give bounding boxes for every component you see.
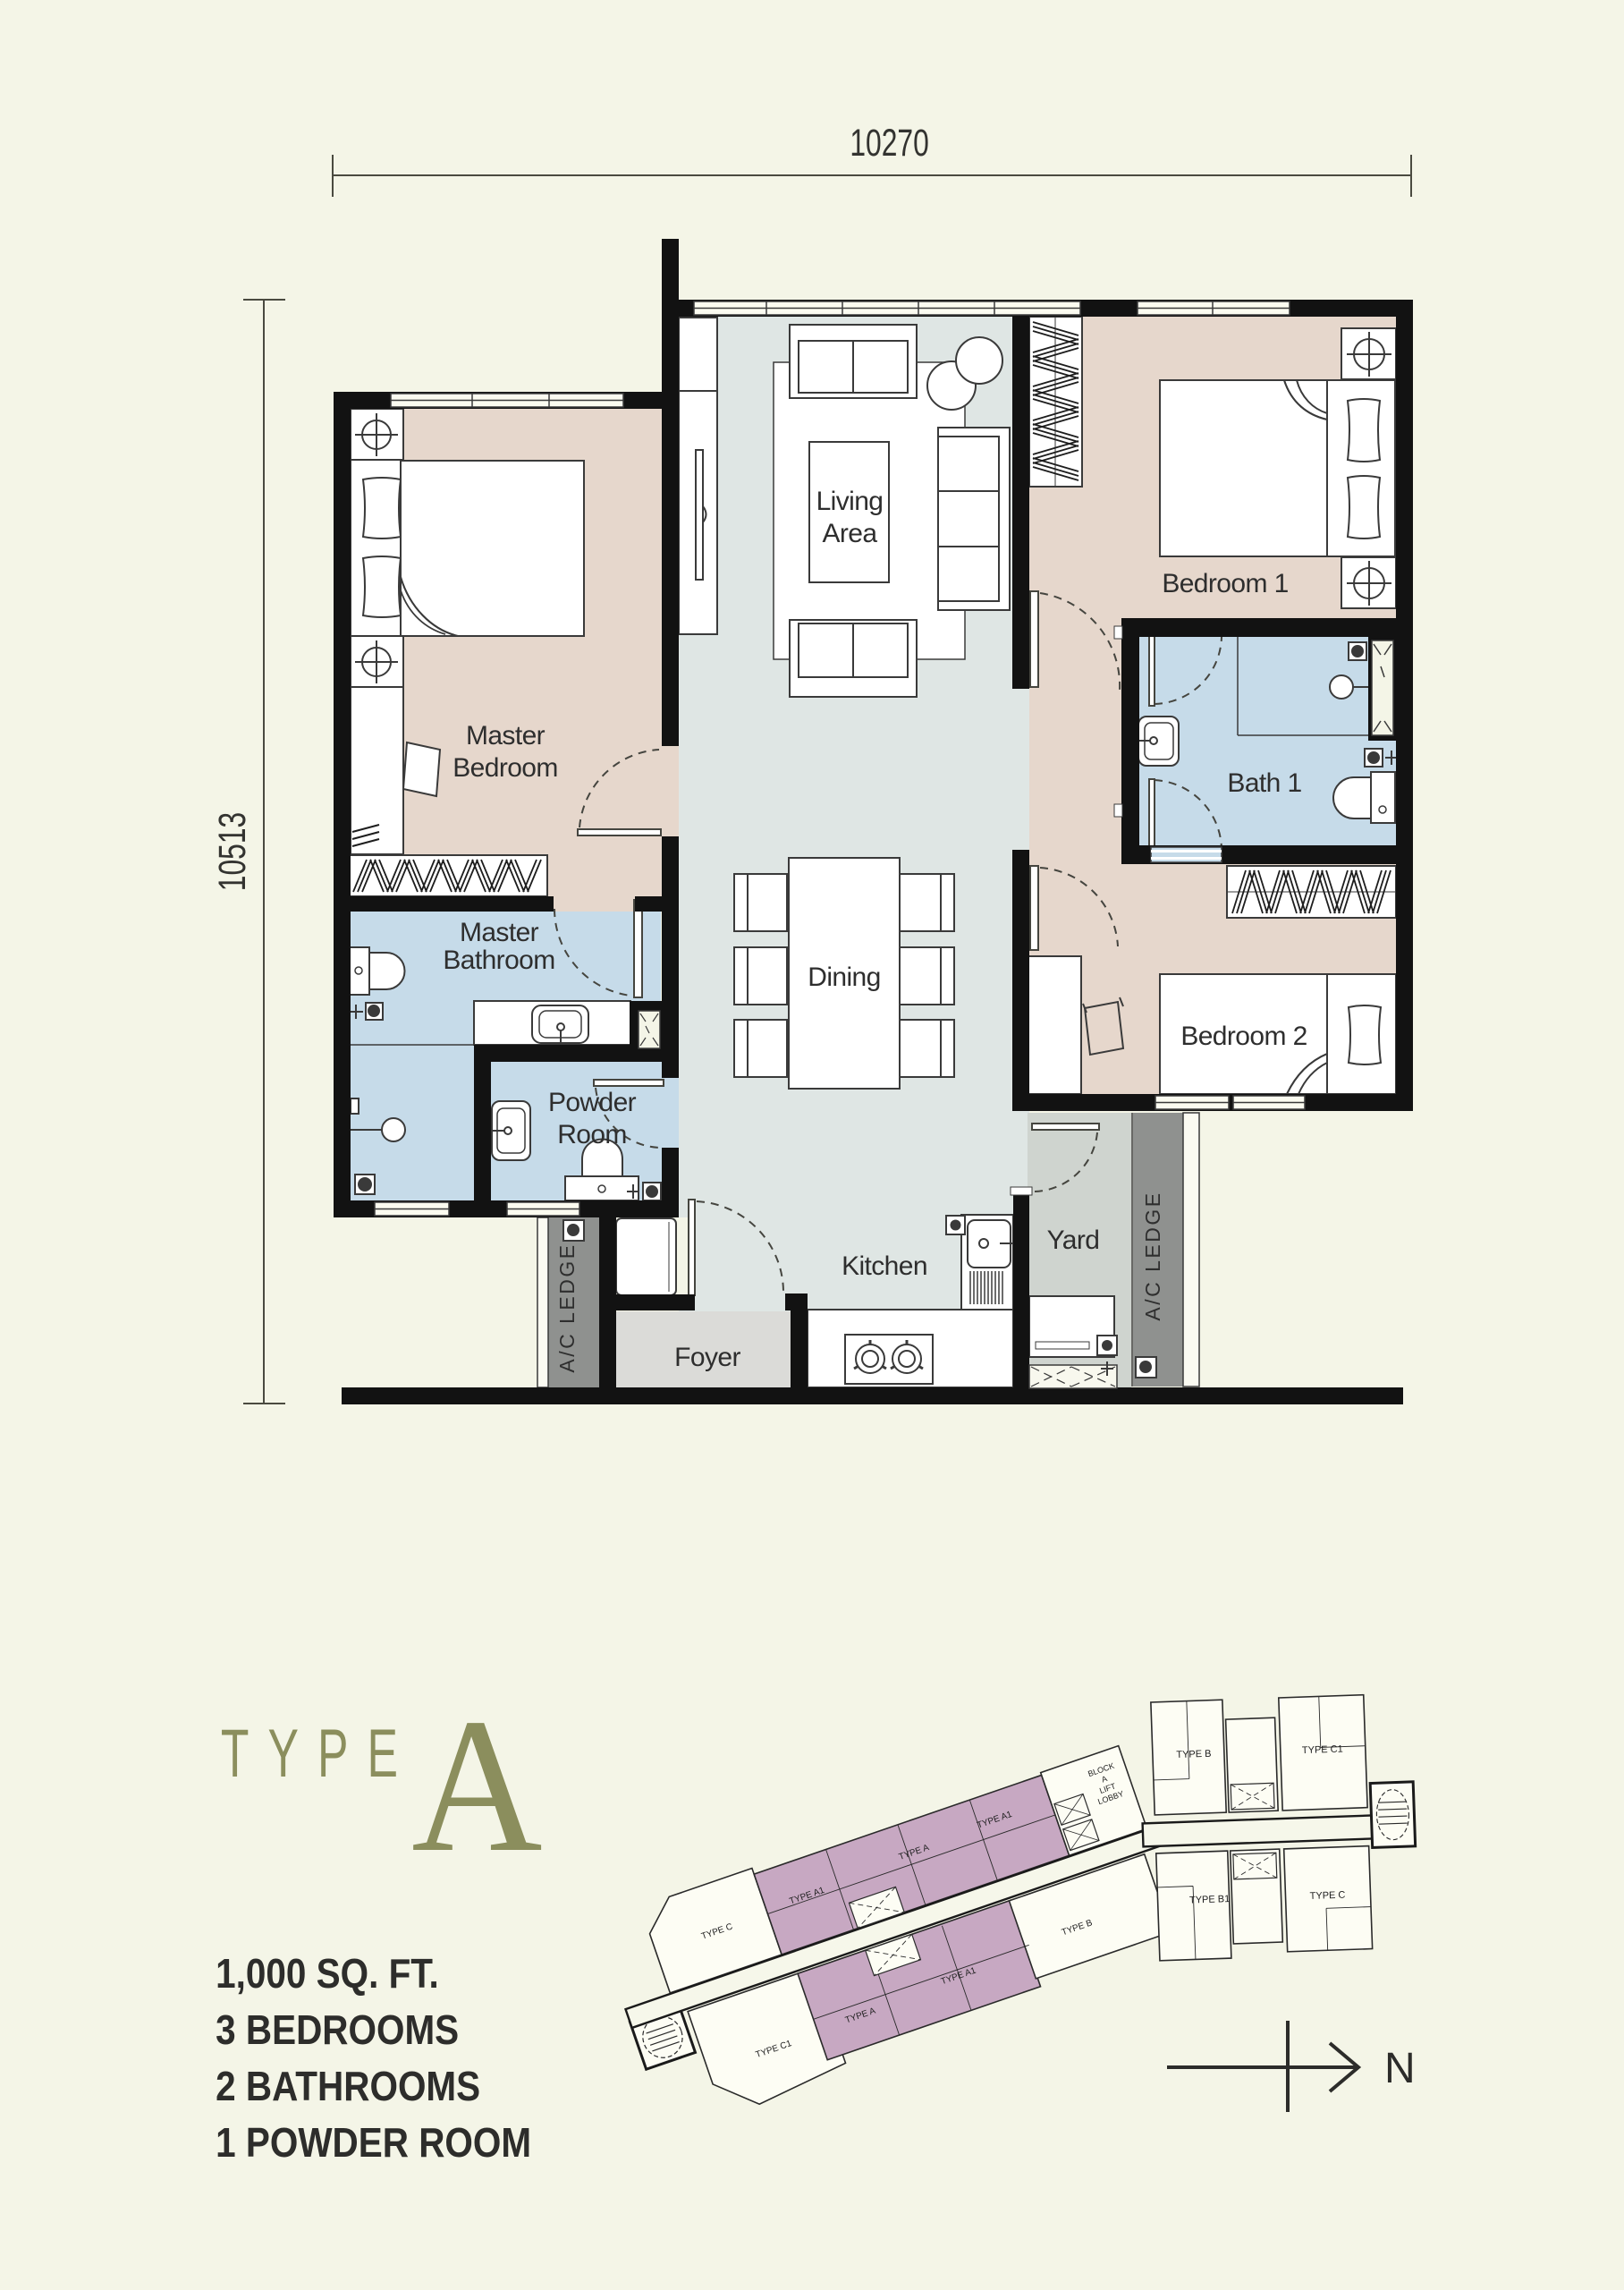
svg-text:Powder: Powder xyxy=(548,1088,637,1117)
svg-text:Bedroom 2: Bedroom 2 xyxy=(1180,1022,1307,1051)
svg-text:Dining: Dining xyxy=(808,963,880,992)
svg-text:Master: Master xyxy=(466,721,546,751)
svg-text:A: A xyxy=(411,1680,542,1893)
svg-text:Yard: Yard xyxy=(1047,1226,1100,1255)
svg-text:1 POWDER ROOM: 1 POWDER ROOM xyxy=(216,2121,531,2167)
svg-text:Master: Master xyxy=(460,918,539,947)
svg-text:TYPE C: TYPE C xyxy=(1309,1890,1345,1902)
svg-text:10270: 10270 xyxy=(850,122,928,165)
svg-text:N: N xyxy=(1384,2045,1416,2092)
svg-text:Bedroom: Bedroom xyxy=(453,753,558,783)
svg-text:TYPE: TYPE xyxy=(221,1715,417,1791)
svg-text:Room: Room xyxy=(557,1120,627,1149)
svg-text:3 BEDROOMS: 3 BEDROOMS xyxy=(216,2008,459,2054)
svg-text:Bathroom: Bathroom xyxy=(443,946,554,975)
svg-text:A/C LEDGE: A/C LEDGE xyxy=(1141,1191,1164,1320)
svg-text:2 BATHROOMS: 2 BATHROOMS xyxy=(216,2065,480,2110)
svg-text:A/C LEDGE: A/C LEDGE xyxy=(555,1243,579,1372)
svg-text:TYPE B: TYPE B xyxy=(1176,1749,1212,1760)
svg-text:TYPE C1: TYPE C1 xyxy=(1302,1744,1343,1757)
svg-text:Living: Living xyxy=(816,487,884,516)
svg-text:10513: 10513 xyxy=(211,812,254,891)
svg-text:Bath 1: Bath 1 xyxy=(1227,768,1301,798)
svg-text:1,000 SQ. FT.: 1,000 SQ. FT. xyxy=(216,1952,439,1997)
svg-text:Bedroom 1: Bedroom 1 xyxy=(1162,569,1288,598)
svg-text:Foyer: Foyer xyxy=(674,1343,740,1372)
svg-text:Kitchen: Kitchen xyxy=(842,1251,927,1281)
svg-text:TYPE B1: TYPE B1 xyxy=(1189,1894,1231,1906)
svg-text:Area: Area xyxy=(823,519,878,548)
